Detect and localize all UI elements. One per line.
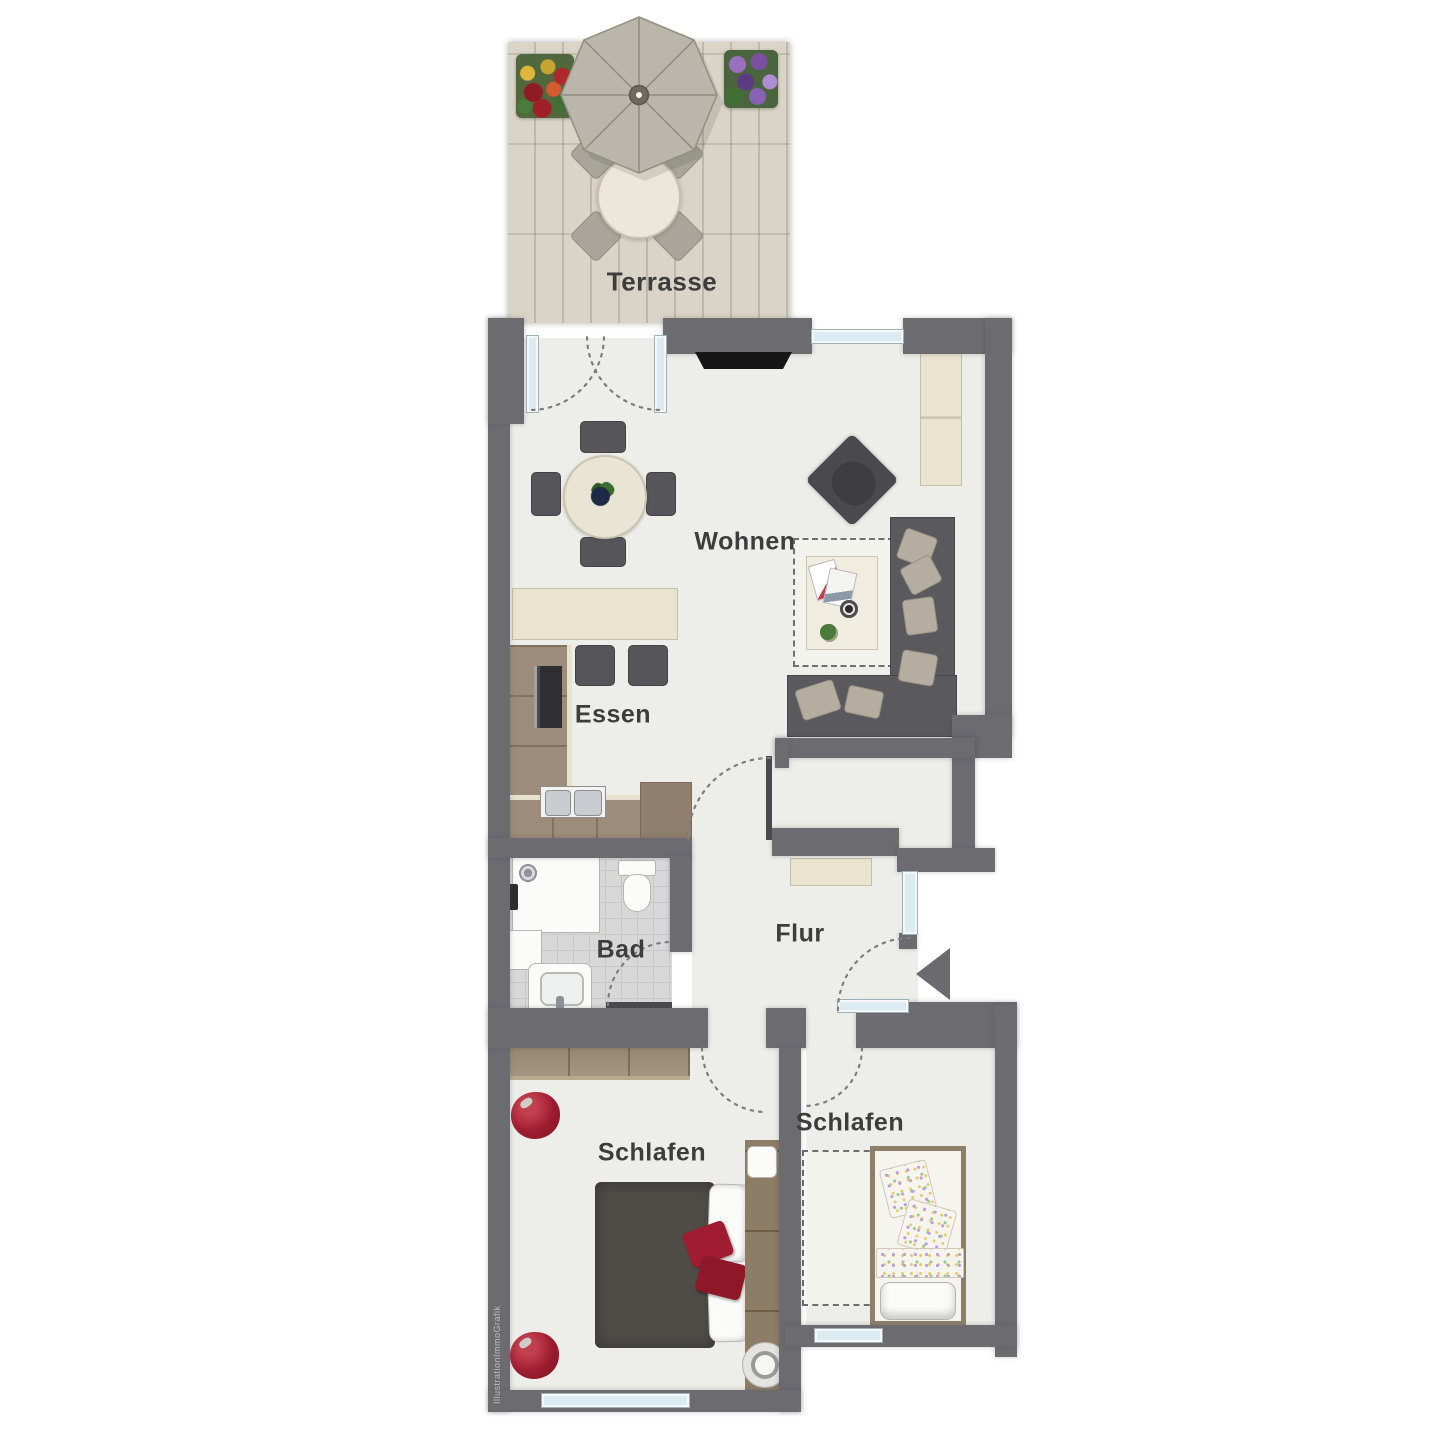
dining-chair xyxy=(531,472,561,516)
room-label-schlafen-second: Schlafen xyxy=(796,1109,904,1138)
room-label-essen: Essen xyxy=(575,701,651,730)
red-pouf xyxy=(511,1092,560,1139)
terrace-door-leaf-left xyxy=(527,336,538,412)
living-room-window xyxy=(812,330,903,343)
wall-top-mid xyxy=(663,318,812,354)
wall-entrance-nook-top xyxy=(897,848,995,872)
flower-box-left xyxy=(516,54,574,118)
kitchen-bar-counter xyxy=(512,588,678,640)
wall-living-hall-jamb xyxy=(775,738,789,768)
kitchen-sink-basin xyxy=(545,790,571,816)
sofa-cushion xyxy=(902,596,939,636)
wall-outer-left xyxy=(488,318,510,1412)
wall-outer-right-upper xyxy=(985,318,1012,737)
wall-bath-right xyxy=(670,856,692,952)
bathroom-door-leaf xyxy=(606,1002,672,1008)
red-pouf xyxy=(510,1332,559,1379)
illustrator-watermark: IllustrationImmoGrafik xyxy=(492,1305,502,1404)
wall-door-jamb-bedrooms xyxy=(766,1008,806,1048)
pouf-notch xyxy=(518,1336,533,1350)
wall-kitchen-bath xyxy=(488,838,692,858)
dining-chair xyxy=(580,421,626,453)
floorplan-canvas: Terrasse Wohnen Essen Bad Flur Schlafen … xyxy=(0,0,1440,1440)
single-bed-pillow xyxy=(880,1282,956,1320)
bedroom-second-window xyxy=(815,1329,882,1342)
shower-head xyxy=(518,863,538,883)
terrace-door-leaf-right xyxy=(655,336,666,412)
wall-hall-top xyxy=(772,828,899,856)
entrance-door-leaf xyxy=(838,1000,908,1012)
entrance-arrow-icon xyxy=(916,948,950,1000)
kitchen-sink-basin xyxy=(574,790,602,816)
kitchen-cabinet-corner xyxy=(640,782,692,845)
wall-living-hall xyxy=(775,738,975,758)
sofa-cushion xyxy=(897,649,938,687)
bar-stool xyxy=(575,645,615,686)
entrance-doorway-floor xyxy=(890,945,918,1005)
wall-entrance-stub xyxy=(899,933,917,949)
room-label-flur: Flur xyxy=(775,920,824,949)
room-label-terrasse: Terrasse xyxy=(607,267,718,298)
room-label-schlafen-main: Schlafen xyxy=(598,1139,706,1168)
room-label-bad: Bad xyxy=(597,936,646,965)
hallway-window xyxy=(903,872,917,934)
dining-chair xyxy=(580,537,626,567)
hallway-bench xyxy=(790,858,872,886)
bedroom-second-rug xyxy=(802,1150,880,1306)
flower-box-right xyxy=(724,50,778,108)
coffee-cup xyxy=(840,600,858,618)
bar-stool xyxy=(628,645,668,686)
pouf-notch xyxy=(519,1096,534,1110)
bedroom-main-window xyxy=(542,1394,689,1407)
kitchen-oven xyxy=(534,666,562,728)
dining-table-plant xyxy=(590,481,616,509)
patterned-blanket-band xyxy=(876,1248,964,1278)
sideboard xyxy=(920,348,962,486)
living-hall-door-leaf xyxy=(766,756,772,840)
nightstand xyxy=(747,1146,777,1178)
wall-top-left-jamb xyxy=(488,318,524,424)
room-label-wohnen: Wohnen xyxy=(694,528,795,557)
wall-bedroom-divider xyxy=(779,1048,801,1412)
wall-outer-right-lower xyxy=(995,1005,1017,1357)
dining-chair xyxy=(646,472,676,516)
toilet-bowl xyxy=(623,874,651,912)
wall-bath-bedroom xyxy=(488,1008,708,1048)
terrace-table xyxy=(597,155,681,239)
